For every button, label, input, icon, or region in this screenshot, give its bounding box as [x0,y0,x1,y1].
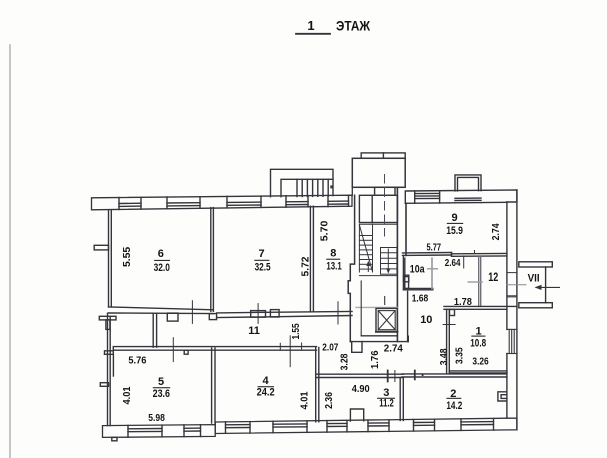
svg-text:10а: 10а [410,263,426,275]
svg-text:4.01: 4.01 [121,386,133,404]
svg-text:6: 6 [158,248,164,260]
svg-text:12: 12 [488,272,498,284]
svg-text:2.64: 2.64 [445,257,461,269]
svg-text:32.0: 32.0 [154,262,170,274]
svg-text:3.48: 3.48 [438,348,450,365]
svg-text:24.2: 24.2 [257,386,275,398]
svg-text:4: 4 [263,375,270,387]
svg-text:5.76: 5.76 [128,354,146,366]
svg-text:2.74: 2.74 [490,223,502,240]
svg-text:5: 5 [158,376,164,388]
svg-text:2.74: 2.74 [384,343,403,355]
svg-text:8: 8 [330,247,336,259]
svg-text:1: 1 [307,18,314,33]
svg-text:11.2: 11.2 [379,397,394,409]
svg-text:1.55: 1.55 [290,323,302,339]
svg-text:5.77: 5.77 [427,242,442,254]
svg-text:4.90: 4.90 [352,383,370,395]
svg-text:32.5: 32.5 [255,261,271,273]
svg-text:13.1: 13.1 [326,260,341,272]
svg-text:3.28: 3.28 [338,353,350,370]
svg-text:15.9: 15.9 [446,225,463,237]
svg-text:1.68: 1.68 [412,293,429,305]
svg-text:10.8: 10.8 [470,337,486,349]
svg-text:ЭТАЖ: ЭТАЖ [336,19,371,34]
svg-text:5.98: 5.98 [148,412,165,424]
svg-text:23.6: 23.6 [153,388,170,400]
svg-text:2.07: 2.07 [322,341,338,353]
svg-text:3.26: 3.26 [472,356,488,368]
svg-text:5.55: 5.55 [121,247,133,267]
svg-text:10: 10 [420,314,432,326]
svg-text:VII: VII [528,273,540,285]
svg-text:3.35: 3.35 [454,347,466,364]
svg-text:9: 9 [451,212,457,224]
svg-text:5.70: 5.70 [319,221,331,242]
svg-text:5.72: 5.72 [299,256,311,276]
svg-text:1.76: 1.76 [369,350,381,369]
svg-text:7: 7 [258,248,264,260]
svg-text:14.2: 14.2 [446,400,462,412]
svg-text:4.01: 4.01 [299,391,311,409]
svg-text:2.36: 2.36 [323,392,335,409]
svg-text:11: 11 [248,325,260,337]
svg-text:1.78: 1.78 [454,296,472,308]
